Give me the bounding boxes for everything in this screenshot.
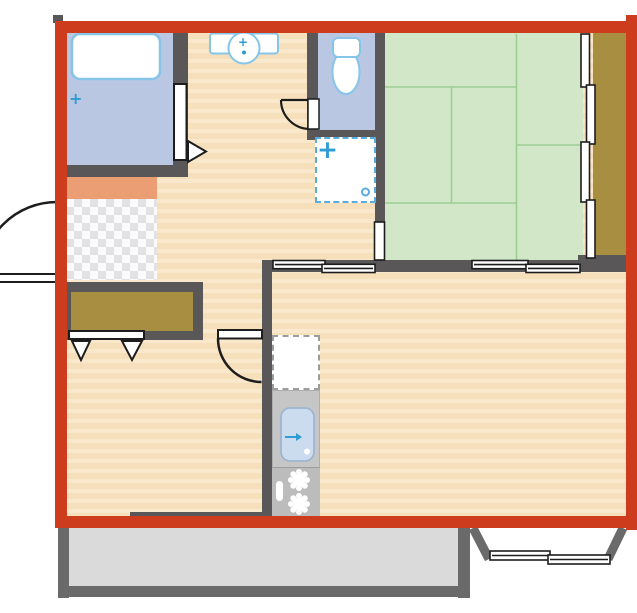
bathtub xyxy=(72,34,160,79)
vanity-drain-icon xyxy=(242,51,246,55)
tatami-side-door-panel xyxy=(375,222,385,260)
bay-sliding-window xyxy=(490,551,610,564)
toilet-door-arc xyxy=(281,100,310,129)
entrance-door-arc xyxy=(0,202,57,278)
sink-drain-icon xyxy=(304,449,310,455)
tatami-mat-lines xyxy=(385,34,583,260)
washer-drain-icon xyxy=(362,189,369,196)
bathroom-door-panel xyxy=(174,84,187,160)
stove-knob xyxy=(276,481,283,501)
highlight-frame-top xyxy=(56,21,630,33)
sliding-door-washroom xyxy=(273,261,375,273)
tatami-window-right xyxy=(581,34,595,258)
toilet-tank xyxy=(333,38,360,57)
bath-sparkle-icon: + xyxy=(69,91,82,107)
bathroom-door-arrow-icon xyxy=(188,141,206,162)
hall-door-arc xyxy=(218,339,262,383)
washer-plus-icon: + xyxy=(317,137,338,162)
floor-plan: + + + xyxy=(0,0,637,613)
sliding-door-tatami xyxy=(472,261,580,273)
closet-door-arrow-icon xyxy=(122,341,142,360)
stove-burner-icon xyxy=(288,493,310,515)
highlight-frame-right xyxy=(626,15,637,530)
hall-door-leaf xyxy=(218,330,262,339)
entrance-door-leaf xyxy=(0,274,57,282)
closet-door-arrow-icon xyxy=(72,341,90,360)
highlight-frame-left xyxy=(55,21,67,528)
stove-burner-icon xyxy=(288,469,310,491)
highlight-frame-bottom xyxy=(56,516,637,528)
toilet-door-opening xyxy=(308,99,319,129)
vanity-faucet-icon: + xyxy=(238,36,248,48)
